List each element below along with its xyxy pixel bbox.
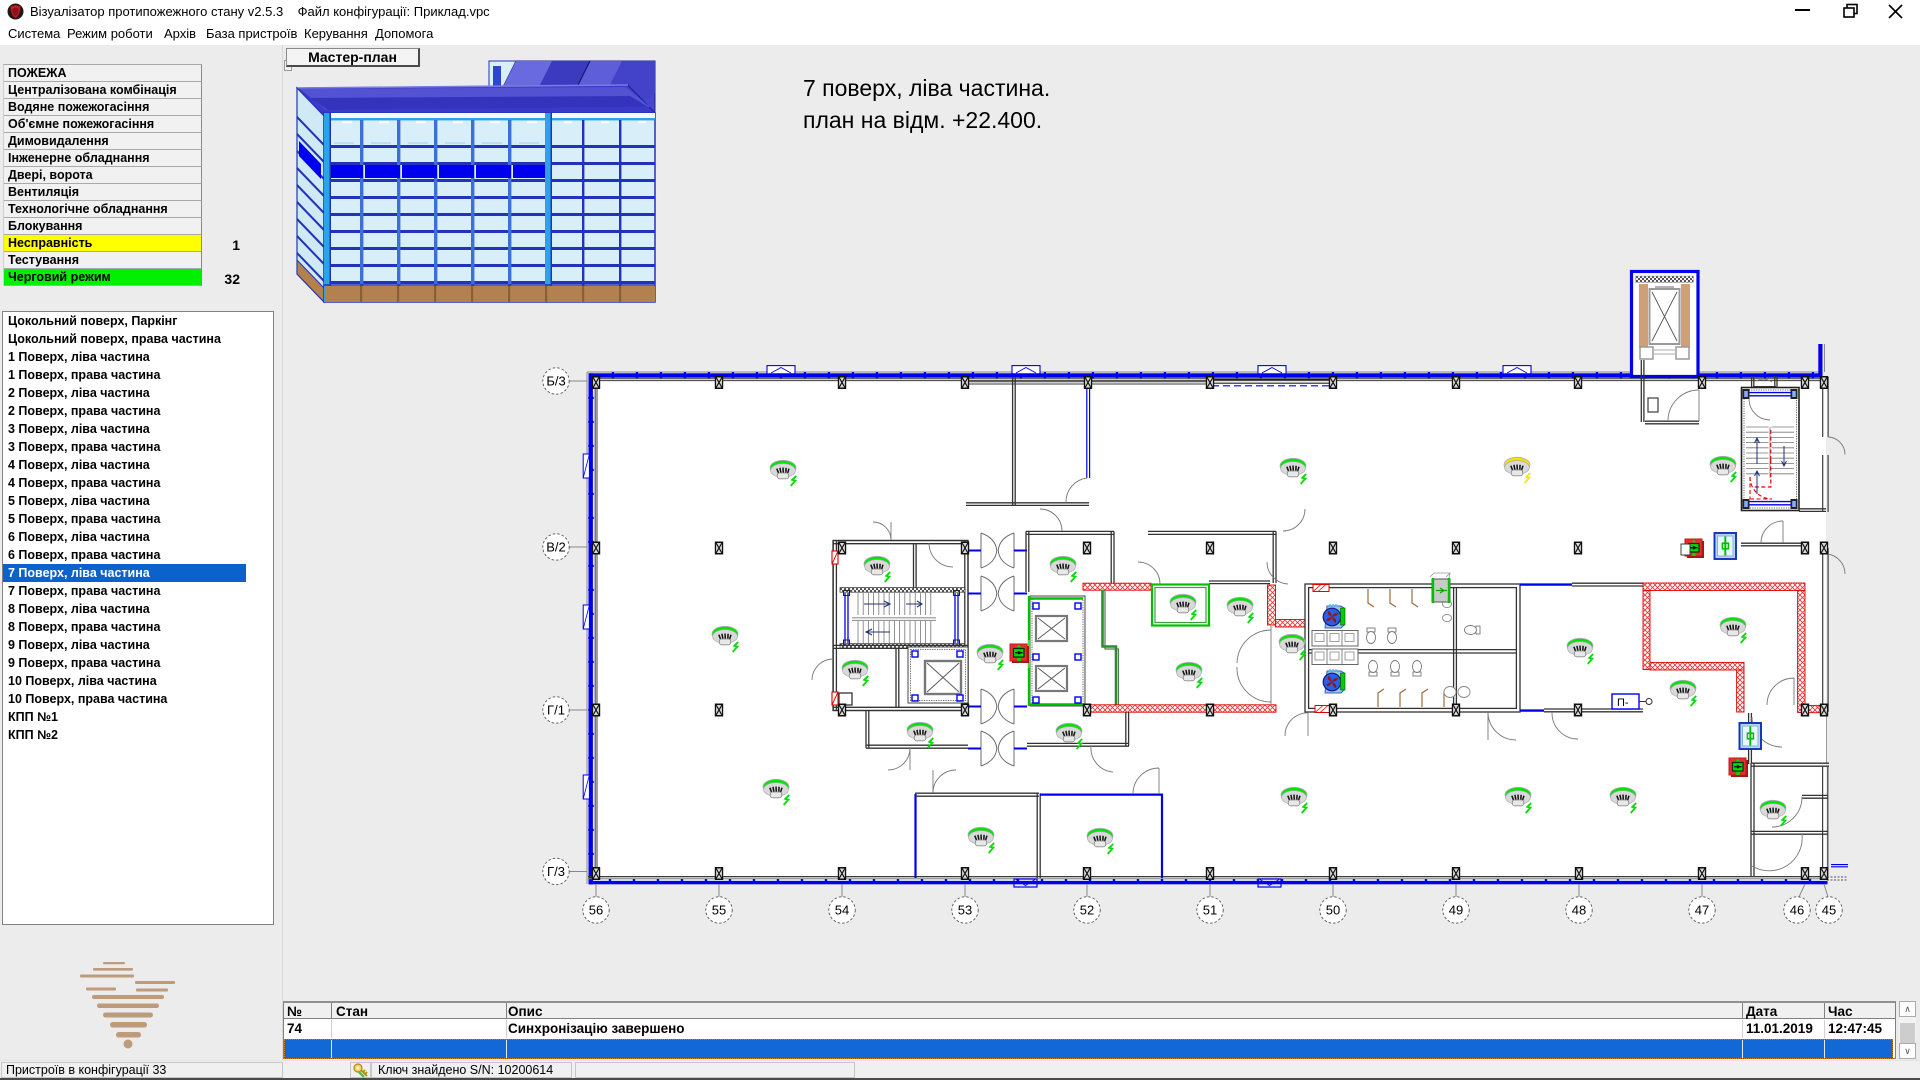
svg-text:49: 49: [1449, 903, 1463, 918]
svg-text:54: 54: [835, 903, 849, 918]
svg-text:51: 51: [1203, 903, 1217, 918]
svg-text:52: 52: [1080, 903, 1094, 918]
svg-text:В/2: В/2: [546, 540, 566, 555]
svg-text:Г/1: Г/1: [547, 703, 565, 718]
svg-text:45: 45: [1822, 903, 1836, 918]
svg-text:48: 48: [1572, 903, 1586, 918]
svg-text:47: 47: [1695, 903, 1709, 918]
svg-text:56: 56: [589, 903, 603, 918]
svg-text:46: 46: [1790, 903, 1804, 918]
svg-text:50: 50: [1326, 903, 1340, 918]
svg-text:П-: П-: [1617, 697, 1629, 709]
svg-text:55: 55: [712, 903, 726, 918]
svg-text:53: 53: [958, 903, 972, 918]
svg-text:Г/3: Г/3: [547, 864, 565, 879]
svg-text:Б/3: Б/3: [546, 374, 565, 389]
